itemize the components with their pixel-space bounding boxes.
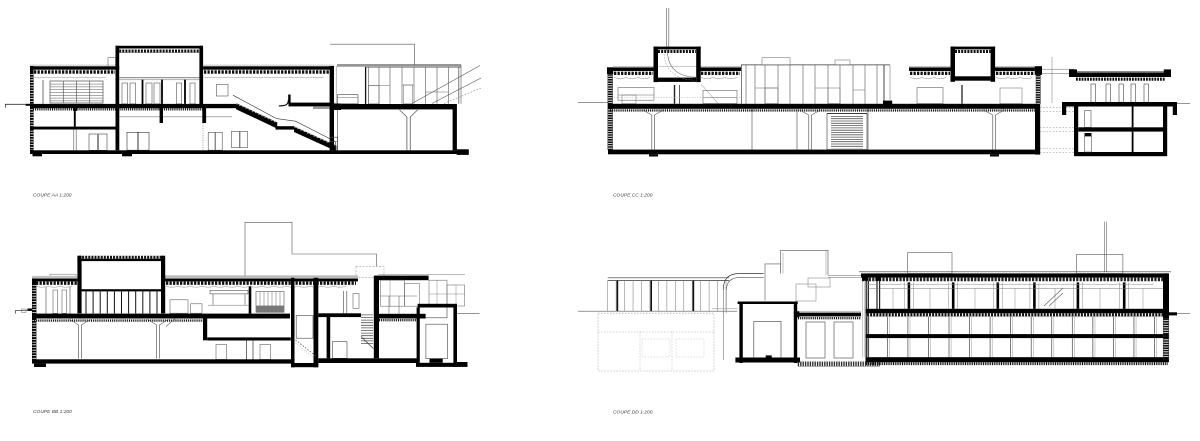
svg-text:COUPE CC 1:200: COUPE CC 1:200	[613, 193, 653, 199]
svg-text:COUPE AA 1:200: COUPE AA 1:200	[33, 193, 72, 199]
svg-text:COUPE BB 1:200: COUPE BB 1:200	[33, 409, 72, 415]
svg-text:COUPE DD 1:200: COUPE DD 1:200	[613, 409, 653, 415]
